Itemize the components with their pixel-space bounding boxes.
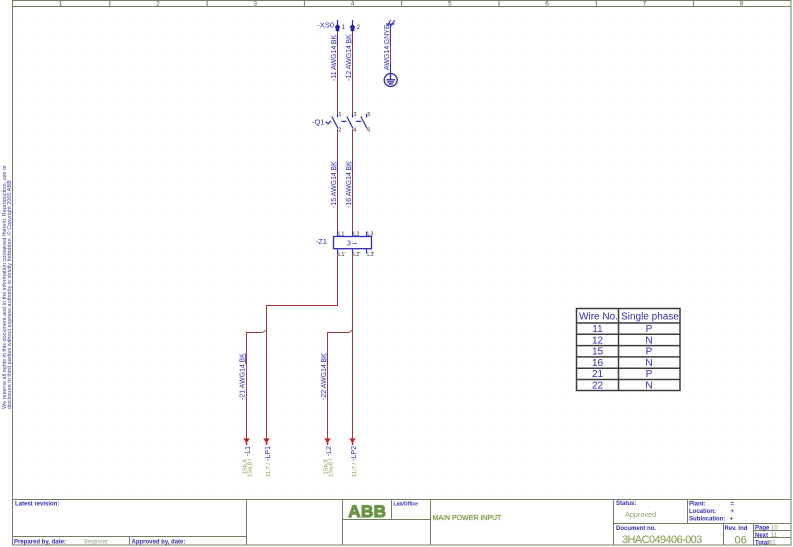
svg-text:-Q1: -Q1 (312, 117, 325, 126)
svg-text:+: + (731, 509, 735, 515)
svg-text:Next: Next (755, 533, 768, 539)
svg-text:15: 15 (592, 347, 604, 358)
svg-text:-LP1: -LP1 (265, 446, 272, 461)
svg-text:06: 06 (735, 535, 747, 547)
svg-text:-21 AWG14 BK: -21 AWG14 BK (239, 353, 246, 400)
svg-text:L3': L3' (367, 252, 374, 258)
svg-text:21: 21 (592, 369, 604, 380)
svg-text:11: 11 (592, 324, 603, 335)
svg-text:+: + (730, 517, 734, 523)
svg-text:12: 12 (592, 335, 604, 346)
svg-text:Latest revision:: Latest revision: (15, 502, 59, 508)
svg-text:6: 6 (367, 128, 370, 134)
svg-text:Approved by, date:: Approved by, date: (132, 540, 186, 546)
svg-text:1Sb;8: 1Sb;8 (242, 459, 248, 474)
svg-text:AWG14 GNYE: AWG14 GNYE (384, 24, 391, 70)
svg-text:10: 10 (771, 526, 778, 532)
svg-text:-16 AWG14 BK: -16 AWG14 BK (346, 161, 353, 208)
svg-text:7: 7 (643, 1, 647, 8)
svg-text:1Sa;8 /: 1Sa;8 / (248, 458, 254, 477)
svg-text:11;7 /: 11;7 / (266, 463, 272, 477)
svg-text:6: 6 (545, 1, 549, 8)
svg-text:Single phase: Single phase (621, 312, 679, 323)
svg-text:2: 2 (156, 1, 160, 8)
svg-text:Approved: Approved (625, 510, 656, 519)
svg-text:Page: Page (755, 526, 770, 532)
svg-text:3: 3 (253, 1, 257, 8)
svg-text:N: N (645, 335, 652, 346)
svg-text:22: 22 (592, 381, 604, 392)
svg-text:11;7 /: 11;7 / (352, 463, 358, 477)
svg-text:Location:: Location: (689, 509, 716, 515)
svg-text:Prepared by, date:: Prepared by, date: (14, 540, 66, 546)
svg-text:3HAC049406-003: 3HAC049406-003 (622, 534, 702, 546)
svg-text:P: P (646, 347, 653, 358)
svg-text:Status:: Status: (616, 501, 636, 507)
svg-text:Document no.: Document no. (616, 526, 656, 532)
svg-text:5: 5 (448, 1, 452, 8)
svg-text:-22 AWG14 BK: -22 AWG14 BK (321, 353, 328, 400)
svg-text:L2': L2' (353, 252, 360, 258)
svg-text:N: N (645, 358, 652, 369)
svg-text:1: 1 (338, 112, 341, 118)
svg-text:Wire No.: Wire No. (579, 312, 618, 323)
svg-text:16: 16 (592, 358, 604, 369)
svg-text:Rev. Ind: Rev. Ind (725, 526, 748, 532)
svg-text:2: 2 (338, 128, 341, 134)
svg-text:L1': L1' (338, 252, 345, 258)
svg-text:-LP2: -LP2 (351, 446, 358, 461)
svg-text:N: N (645, 381, 652, 392)
svg-text:P: P (646, 369, 653, 380)
svg-text:-15 AWG14 BK: -15 AWG14 BK (331, 161, 338, 208)
svg-text:-12 AWG14 BK: -12 AWG14 BK (346, 34, 353, 81)
svg-text:3: 3 (353, 112, 356, 118)
svg-text:4: 4 (353, 128, 356, 134)
svg-text:11: 11 (771, 533, 778, 539)
svg-text:Plant:: Plant: (689, 502, 706, 508)
svg-text:1Sb;8: 1Sb;8 (323, 459, 329, 474)
svg-text:Beginner: Beginner (84, 540, 108, 546)
svg-text:Sublocation:: Sublocation: (689, 517, 725, 523)
svg-text:-L2: -L2 (326, 446, 333, 456)
svg-text:-Z1: -Z1 (316, 237, 327, 246)
svg-text:Lab/Office: Lab/Office (394, 502, 419, 508)
svg-text:ABB: ABB (348, 502, 386, 521)
svg-text:1: 1 (59, 1, 63, 8)
svg-text:4: 4 (351, 1, 355, 8)
svg-text:-XS0: -XS0 (317, 21, 334, 30)
svg-text:disclosure to third parties wi: disclosure to third parties without expr… (6, 180, 13, 409)
svg-text:61: 61 (769, 540, 776, 546)
svg-text:8: 8 (740, 1, 744, 8)
svg-text:P: P (646, 324, 653, 335)
svg-text:=: = (731, 502, 735, 508)
svg-text:1Sa;8 /: 1Sa;8 / (329, 458, 335, 477)
svg-text:Total: Total (755, 540, 769, 546)
svg-text:-11 AWG14 BK: -11 AWG14 BK (331, 35, 338, 81)
svg-text:-L1: -L1 (245, 446, 252, 456)
svg-text:5: 5 (367, 112, 370, 118)
svg-text:MAIN POWER INPUT: MAIN POWER INPUT (433, 515, 503, 522)
